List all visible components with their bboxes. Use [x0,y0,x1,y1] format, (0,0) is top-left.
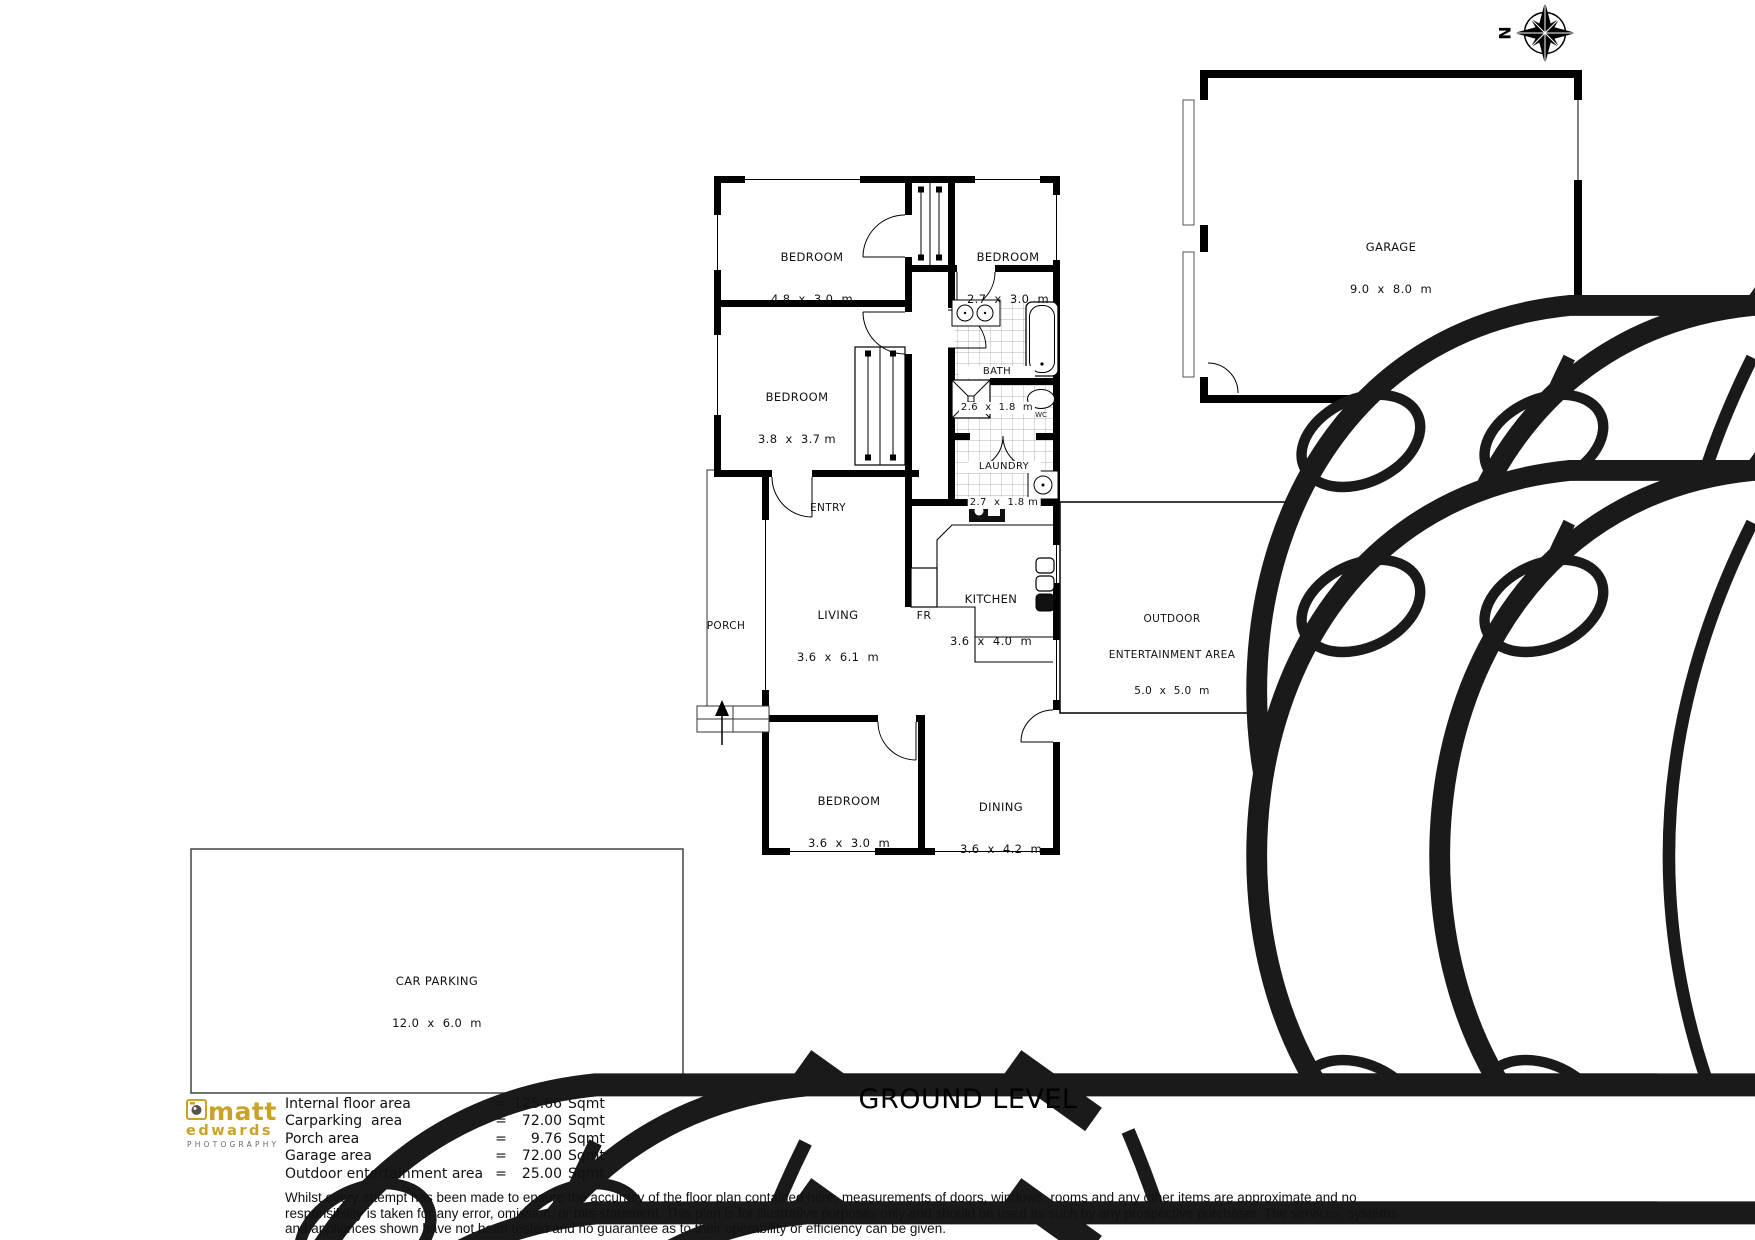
living-label: LIVING 3.6 x 6.1 m [797,580,879,678]
garage-label: GARAGE 9.0 x 8.0 m [1350,212,1432,310]
laundry-label: LAUNDRY 2.7 x 1.8 m [968,437,1041,521]
entry-label: ENTRY [810,478,846,526]
steps-icon [697,700,769,745]
page-title: GROUND LEVEL [859,1084,1078,1115]
area-summary: Internal floor area = 125.66 Sqmt Carpar… [285,1096,605,1183]
dining-label: DINING 3.6 x 4.2 m [960,772,1042,870]
bedroom3-label: BEDROOM 3.8 x 3.7 m [758,362,836,460]
closets [855,183,942,465]
camera-icon [186,1099,207,1120]
compass-north-label: N [1496,26,1515,39]
compass-icon: N [1496,2,1577,64]
bedroom4-label: BEDROOM 3.6 x 3.0 m [808,766,890,864]
porch-label: PORCH [707,596,746,644]
floor-plan-page: N BEDROOM 4.8 x 3.0 m BEDROOM 2.7 x 3.0 … [0,0,1755,1240]
counter-outline [911,525,1053,568]
kitchen-label: KITCHEN 3.6 x 4.0 m [950,564,1032,662]
stove-icon [1036,558,1054,611]
area-row: Carparking area = 72.00 Sqmt [285,1113,605,1130]
carparking-label: CAR PARKING 12.0 x 6.0 m [392,946,482,1044]
bedroom1-label: BEDROOM 4.8 x 3.0 m [771,222,853,320]
logo-word-photography: PHOTOGRAPHY [187,1140,279,1149]
logo-word-edwards: edwards [186,1123,273,1139]
outdoor-label: OUTDOOR ENTERTAINMENT AREA 5.0 x 5.0 m [1109,589,1236,709]
bedroom2-label: BEDROOM 2.7 x 3.0 m [967,222,1049,320]
area-row: Garage area = 72.00 Sqmt [285,1148,605,1165]
wc-label: WC [1035,395,1047,427]
area-row: Internal floor area = 125.66 Sqmt [285,1096,605,1113]
disclaimer-text: Whilst every attempt has been made to en… [285,1190,1585,1237]
area-row: Outdoor entertainment area = 25.00 Sqmt [285,1166,605,1183]
bath-label: BATH 2.6 x 1.8 m [959,342,1035,426]
fridge-label: FR [917,581,932,637]
area-row: Porch area = 9.76 Sqmt [285,1131,605,1148]
garage-door-panels [1183,100,1194,377]
logo-word-matt: matt [208,1097,277,1126]
